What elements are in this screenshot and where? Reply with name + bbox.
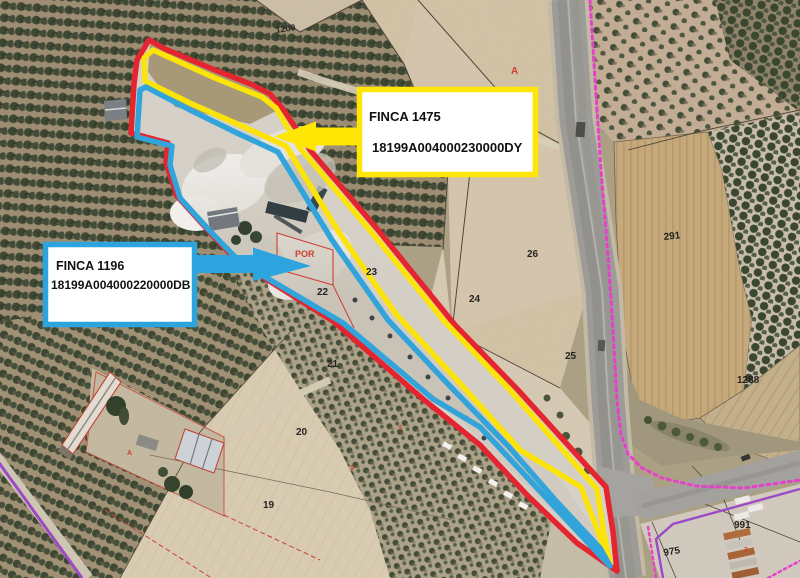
svg-text:FINCA 1475: FINCA 1475 — [369, 109, 441, 124]
svg-text:18199A004000230000DY: 18199A004000230000DY — [372, 140, 523, 155]
svg-text:FINCA 1196: FINCA 1196 — [56, 259, 124, 273]
svg-text:18199A004000220000DB: 18199A004000220000DB — [51, 278, 191, 292]
